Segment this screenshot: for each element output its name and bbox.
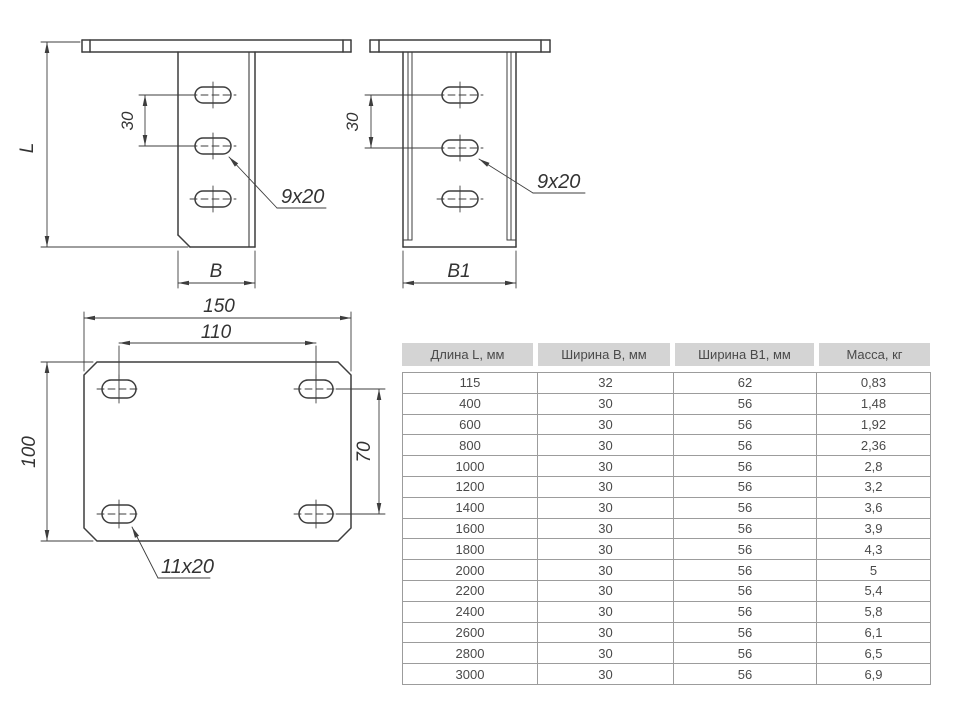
slotted-hole [294, 375, 338, 403]
cell-width-b: 30 [538, 580, 674, 601]
cell-width-b1: 62 [674, 373, 817, 394]
cell-width-b1: 56 [674, 560, 817, 581]
spec-table: Длина L, мм Ширина B, мм Ширина B1, мм М… [402, 343, 930, 685]
cell-length: 800 [403, 435, 538, 456]
front-stem [178, 52, 255, 247]
cell-width-b: 32 [538, 373, 674, 394]
slotted-hole [190, 133, 236, 159]
slotted-hole [190, 82, 236, 108]
cell-width-b: 30 [538, 560, 674, 581]
cell-width-b1: 56 [674, 435, 817, 456]
dim-label-70: 70 [354, 441, 375, 463]
technical-drawing-page: L 30 B 9x20 [0, 0, 960, 720]
table-row: 2200 30 56 5,4 [403, 580, 931, 601]
side-slotted-holes [437, 82, 483, 212]
slotted-hole [437, 135, 483, 161]
dim-label-100: 100 [19, 436, 40, 468]
cell-length: 2800 [403, 643, 538, 664]
dimension-110 [119, 343, 316, 378]
cell-length: 1400 [403, 497, 538, 518]
cell-mass: 6,9 [817, 664, 931, 685]
side-flange [370, 40, 550, 52]
cell-mass: 5 [817, 560, 931, 581]
cell-width-b: 30 [538, 497, 674, 518]
cell-mass: 5,4 [817, 580, 931, 601]
cell-mass: 3,9 [817, 518, 931, 539]
table-row: 600 30 56 1,92 [403, 414, 931, 435]
header-length: Длина L, мм [402, 343, 533, 366]
plan-slotted-holes [97, 375, 338, 528]
cell-width-b1: 56 [674, 539, 817, 560]
cell-mass: 3,2 [817, 476, 931, 497]
cell-width-b: 30 [538, 601, 674, 622]
table-row: 2600 30 56 6,1 [403, 622, 931, 643]
dimension-100 [41, 362, 93, 541]
cell-width-b1: 56 [674, 601, 817, 622]
dim-label-B1: B1 [447, 261, 470, 282]
cell-width-b: 30 [538, 414, 674, 435]
cell-mass: 1,92 [817, 414, 931, 435]
table-row: 1800 30 56 4,3 [403, 539, 931, 560]
table-row: 1000 30 56 2,8 [403, 456, 931, 477]
cell-length: 2400 [403, 601, 538, 622]
slotted-hole [97, 375, 141, 403]
hole-callout-plan: 11x20 [161, 556, 214, 578]
cell-width-b: 30 [538, 622, 674, 643]
cell-width-b1: 56 [674, 456, 817, 477]
table-row: 2400 30 56 5,8 [403, 601, 931, 622]
dim-label-30-front: 30 [118, 111, 137, 130]
cell-mass: 5,8 [817, 601, 931, 622]
header-width-b: Ширина B, мм [538, 343, 670, 366]
cell-width-b1: 56 [674, 414, 817, 435]
spec-table-body: 115 32 62 0,83 400 30 56 1,48 600 30 56 [402, 372, 931, 685]
cell-length: 3000 [403, 664, 538, 685]
cell-length: 115 [403, 373, 538, 394]
cell-length: 1600 [403, 518, 538, 539]
cell-mass: 6,5 [817, 643, 931, 664]
plan-view: 150 110 100 70 11x20 [19, 296, 385, 578]
cell-length: 2000 [403, 560, 538, 581]
hole-callout-side: 9x20 [537, 171, 580, 193]
cell-width-b1: 56 [674, 643, 817, 664]
cell-length: 2600 [403, 622, 538, 643]
side-channel [403, 52, 516, 247]
front-flange [82, 40, 351, 52]
cell-mass: 2,8 [817, 456, 931, 477]
table-row: 1200 30 56 3,2 [403, 476, 931, 497]
header-mass: Масса, кг [819, 343, 930, 366]
cell-width-b1: 56 [674, 664, 817, 685]
slotted-hole [437, 82, 483, 108]
header-width-b1: Ширина B1, мм [675, 343, 814, 366]
table-row: 115 32 62 0,83 [403, 373, 931, 394]
cell-length: 1200 [403, 476, 538, 497]
table-row: 2800 30 56 6,5 [403, 643, 931, 664]
table-row: 3000 30 56 6,9 [403, 664, 931, 685]
cell-mass: 6,1 [817, 622, 931, 643]
cell-width-b1: 56 [674, 476, 817, 497]
dim-label-30-side: 30 [343, 112, 362, 131]
table-row: 1600 30 56 3,9 [403, 518, 931, 539]
cell-mass: 1,48 [817, 393, 931, 414]
dim-label-150: 150 [203, 296, 235, 317]
front-slotted-holes [190, 82, 236, 212]
cell-width-b: 30 [538, 664, 674, 685]
cell-mass: 4,3 [817, 539, 931, 560]
cell-length: 2200 [403, 580, 538, 601]
cell-width-b: 30 [538, 456, 674, 477]
cell-width-b1: 56 [674, 497, 817, 518]
cell-width-b: 30 [538, 393, 674, 414]
dimension-L [41, 42, 188, 247]
cell-width-b1: 56 [674, 622, 817, 643]
slotted-hole [190, 186, 236, 212]
cell-width-b: 30 [538, 435, 674, 456]
cell-width-b: 30 [538, 643, 674, 664]
dimension-30-front [139, 95, 194, 146]
side-view: 30 B1 9x20 [343, 40, 585, 288]
slotted-hole [437, 186, 483, 212]
cell-width-b: 30 [538, 476, 674, 497]
spec-table-header: Длина L, мм Ширина B, мм Ширина B1, мм М… [402, 343, 930, 366]
cell-mass: 2,36 [817, 435, 931, 456]
cell-mass: 0,83 [817, 373, 931, 394]
cell-length: 600 [403, 414, 538, 435]
cell-length: 1800 [403, 539, 538, 560]
cell-width-b: 30 [538, 539, 674, 560]
hole-callout-front: 9x20 [281, 186, 324, 208]
cell-mass: 3,6 [817, 497, 931, 518]
cell-length: 400 [403, 393, 538, 414]
front-view: L 30 B 9x20 [17, 40, 351, 288]
cell-width-b1: 56 [674, 580, 817, 601]
table-row: 2000 30 56 5 [403, 560, 931, 581]
cell-width-b1: 56 [674, 518, 817, 539]
slotted-hole [97, 500, 141, 528]
cell-width-b: 30 [538, 518, 674, 539]
slotted-hole [294, 500, 338, 528]
cell-width-b1: 56 [674, 393, 817, 414]
table-row: 400 30 56 1,48 [403, 393, 931, 414]
table-row: 800 30 56 2,36 [403, 435, 931, 456]
dim-label-B: B [210, 261, 223, 282]
dim-label-L: L [17, 143, 38, 154]
cell-length: 1000 [403, 456, 538, 477]
dim-label-110: 110 [201, 322, 232, 343]
table-row: 1400 30 56 3,6 [403, 497, 931, 518]
